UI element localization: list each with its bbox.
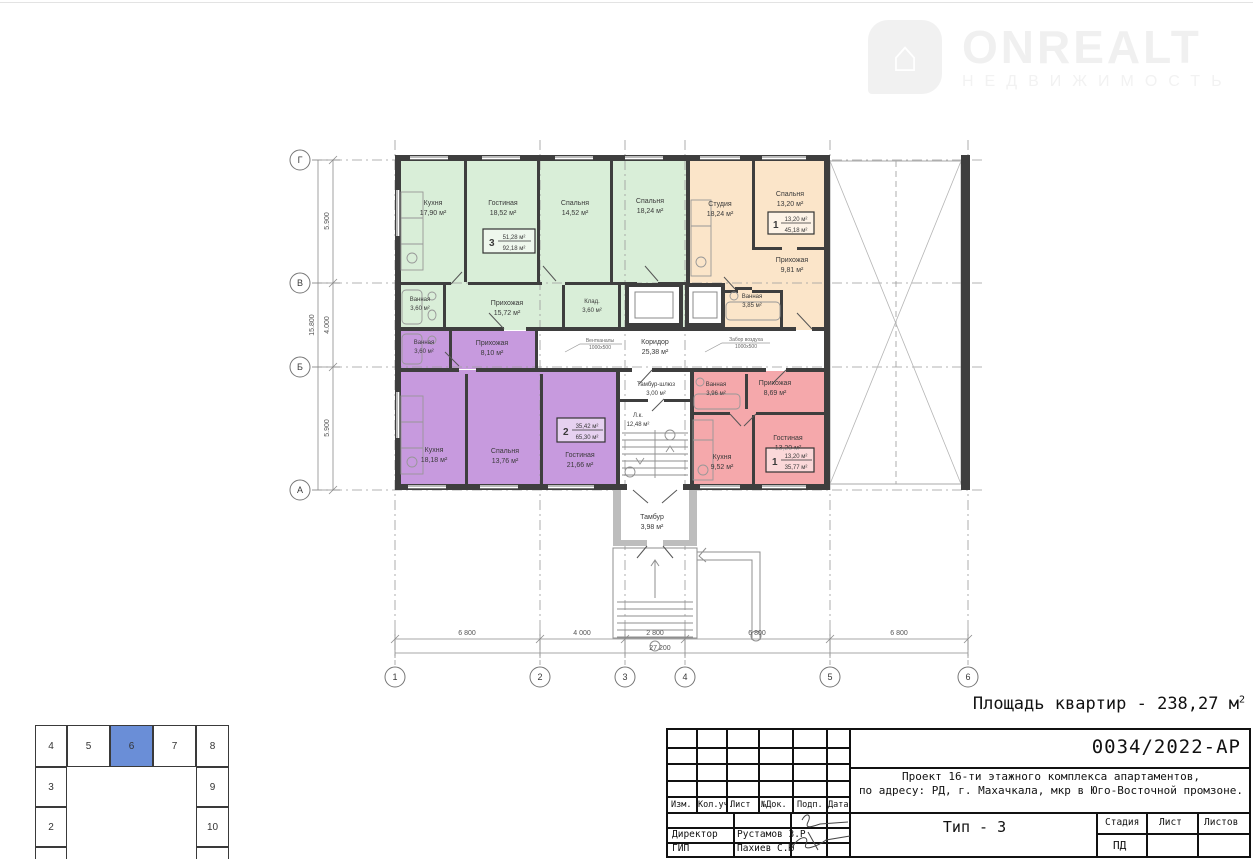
type-label: Тип - 3 (853, 818, 1096, 836)
room-label: Ванная (706, 382, 727, 388)
apt2-summary: 2 35,42 м² 65,30 м² (557, 418, 605, 442)
room-label: Кухня (713, 454, 732, 461)
axis-col-5: 5 (827, 672, 832, 682)
apt-total-area: 92,18 м² (503, 246, 526, 252)
dim-bottom-4: 6 800 (748, 630, 766, 637)
keyplan-cell-4: 4 (35, 725, 67, 767)
room-label: Гостиная (773, 435, 803, 442)
entrance (613, 484, 761, 651)
key-plan: 4 5 6 7 8 3 2 9 10 (35, 723, 231, 859)
room-label: Тамбур (640, 513, 664, 521)
apt-living-area: 13,20 м² (785, 217, 808, 223)
stage-header: Стадия (1105, 817, 1139, 828)
col-koluch: Кол.уч. (698, 800, 734, 810)
future-section (830, 161, 961, 484)
room-area: 18,24 м² (637, 208, 664, 215)
room-area: 25,38 м² (642, 349, 669, 356)
dim-left-1: 5.900 (324, 212, 331, 230)
room-label: Спальня (636, 198, 664, 205)
room-area: 21,66 м² (567, 462, 594, 469)
col-izm: Изм. (671, 800, 691, 810)
room-area: 3,98 м² (641, 524, 664, 531)
axis-row-g: Г (298, 155, 303, 165)
room-area: 13,76 м² (492, 458, 519, 465)
dim-bottom-2: 4 000 (573, 630, 591, 637)
annotation-left-size: 1000х500 (589, 345, 611, 351)
room-label: Ванная (414, 340, 435, 346)
room-label: Л.к. (633, 413, 643, 419)
room-area: 17,90 м² (420, 210, 447, 217)
sheets-header: Листов (1204, 817, 1238, 828)
col-list: Лист (730, 800, 750, 810)
apt-living-area: 13,20 м² (785, 454, 808, 460)
apt3-summary: 3 51,28 м² 92,18 м² (483, 229, 535, 253)
keyplan-cell-10: 10 (196, 807, 229, 847)
room-label: Тамбур-шлюз (637, 382, 675, 388)
room-label: Спальня (561, 200, 589, 207)
axis-col-4: 4 (682, 672, 687, 682)
floor-plan: Г В Б А 1 2 3 4 5 6 (0, 0, 1253, 722)
keyplan-cell-2: 2 (35, 807, 67, 847)
project-description: Проект 16-ти этажного комплекса апартаме… (853, 770, 1249, 798)
apt-total-area: 65,30 м² (576, 435, 599, 441)
elevator-shafts (627, 285, 723, 325)
keyplan-cell-8: 8 (196, 725, 229, 767)
apt1bottom-summary: 1 13,20 м² 35,77 м² (766, 448, 814, 472)
annotation-right: Забор воздуха (729, 337, 763, 343)
room-area: 3,85 м² (742, 303, 761, 309)
role-director: Директор (672, 829, 718, 840)
room-area: 13,20 м² (777, 201, 804, 208)
room-area: 12,48 м² (627, 422, 650, 428)
keyplan-cell-5: 5 (67, 725, 110, 767)
room-label: Кухня (424, 200, 443, 207)
apt-total-area: 35,77 м² (785, 465, 808, 471)
room-area: 9,52 м² (711, 464, 734, 471)
room-area: 18,24 м² (707, 211, 734, 218)
apt-number: 3 (489, 238, 495, 249)
room-label: Спальня (776, 191, 804, 198)
dim-bottom-3: 2 800 (646, 630, 664, 637)
keyplan-cell-6-highlighted: 6 (110, 725, 153, 767)
dim-left-3: 5.900 (324, 419, 331, 437)
apt-living-area: 35,42 м² (576, 424, 599, 430)
stage-value: ПД (1113, 839, 1126, 852)
room-label: Прихожая (776, 257, 809, 264)
room-area: 14,52 м² (562, 210, 589, 217)
room-area: 3,60 м² (410, 306, 429, 312)
dim-left-2: 4.000 (324, 316, 331, 334)
room-area: 15,72 м² (494, 310, 521, 317)
apt-total-area: 45,18 м² (785, 228, 808, 234)
staircase (622, 430, 688, 478)
dim-bottom-5: 6 800 (890, 630, 908, 637)
drawing-sheet: ⌂ ONREALT НЕДВИЖИМОСТЬ (0, 0, 1253, 859)
apt-number: 2 (563, 427, 569, 438)
keyplan-cell-3: 3 (35, 767, 67, 807)
room-area: 3,60 м² (582, 308, 601, 314)
axis-row-v: В (297, 278, 303, 288)
room-area: 18,18 м² (421, 457, 448, 464)
col-dok: №Док. (761, 800, 787, 810)
dim-bottom-1: 6 800 (458, 630, 476, 637)
room-label: Спальня (491, 448, 519, 455)
role-gip: ГИП (672, 843, 689, 854)
annotation-left: Вентканалы (586, 338, 615, 344)
room-label: Студия (708, 201, 732, 208)
apt-living-area: 51,28 м² (503, 235, 526, 241)
room-area: 8,10 м² (481, 350, 504, 357)
dim-bottom-total: 27 200 (649, 645, 671, 652)
apt-number: 1 (772, 457, 778, 468)
room-label: Прихожая (491, 300, 524, 307)
room-area: 3,96 м² (706, 391, 725, 397)
col-podp: Подп. (797, 800, 823, 810)
total-area-text: Площадь квартир - 238,27 м (973, 694, 1239, 714)
room-label: Прихожая (759, 380, 792, 387)
room-label: Кухня (425, 447, 444, 454)
sheet-header: Лист (1159, 817, 1182, 828)
apt1top-summary: 1 13,20 м² 45,18 м² (768, 212, 814, 234)
axis-row-b: Б (297, 362, 303, 372)
axis-col-2: 2 (537, 672, 542, 682)
annotation-right-size: 1000х500 (735, 344, 757, 350)
keyplan-cell-7: 7 (153, 725, 196, 767)
room-area: 3,00 м² (646, 391, 665, 397)
room-label: Клад. (584, 299, 600, 305)
room-label: Коридор (641, 339, 669, 346)
room-area: 3,60 м² (414, 349, 433, 355)
title-block: Изм. Кол.уч. Лист №Док. Подп. Дата Дирек… (666, 728, 1251, 858)
axis-col-3: 3 (622, 672, 627, 682)
room-label: Гостиная (565, 452, 595, 459)
dim-left-total: 15.800 (309, 314, 316, 336)
keyplan-cell-partial-left (35, 847, 67, 859)
room-area: 8,69 м² (764, 390, 787, 397)
room-label: Гостиная (488, 200, 518, 207)
axis-col-6: 6 (965, 672, 970, 682)
total-area-note: Площадь квартир - 238,27 м2 (973, 694, 1245, 714)
col-data: Дата (828, 800, 848, 810)
signature-scribbles (784, 810, 854, 856)
axis-col-1: 1 (392, 672, 397, 682)
room-area: 9,81 м² (781, 267, 804, 274)
apt-number: 1 (773, 220, 779, 231)
document-number: 0034/2022-АР (1092, 736, 1241, 758)
room-area: 18,52 м² (490, 210, 517, 217)
axis-row-a: А (297, 485, 303, 495)
keyplan-cell-9: 9 (196, 767, 229, 807)
room-label: Ванная (410, 297, 431, 303)
keyplan-cell-partial-right (196, 847, 229, 859)
room-label: Ванная (742, 294, 763, 300)
room-label: Прихожая (476, 340, 509, 347)
